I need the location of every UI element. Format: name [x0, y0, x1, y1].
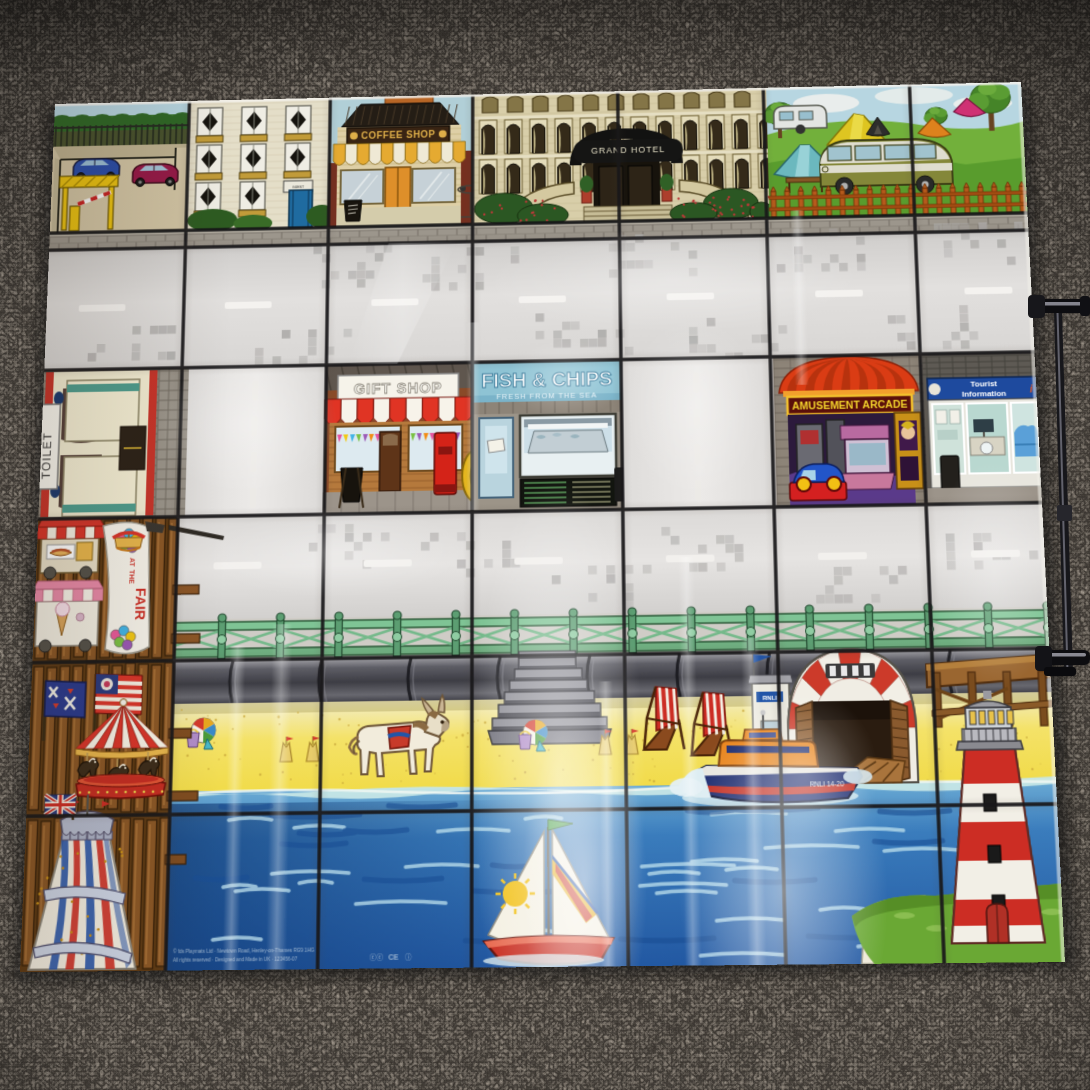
svg-text:ⓘ: ⓘ [405, 953, 412, 962]
svg-text:AMUSEMENT ARCADE: AMUSEMENT ARCADE [792, 400, 908, 414]
svg-text:GIFT SHOP: GIFT SHOP [354, 379, 443, 397]
svg-text:Information: Information [962, 388, 1007, 398]
svg-text:CE: CE [388, 954, 399, 962]
svg-text:Tourist: Tourist [970, 379, 998, 389]
